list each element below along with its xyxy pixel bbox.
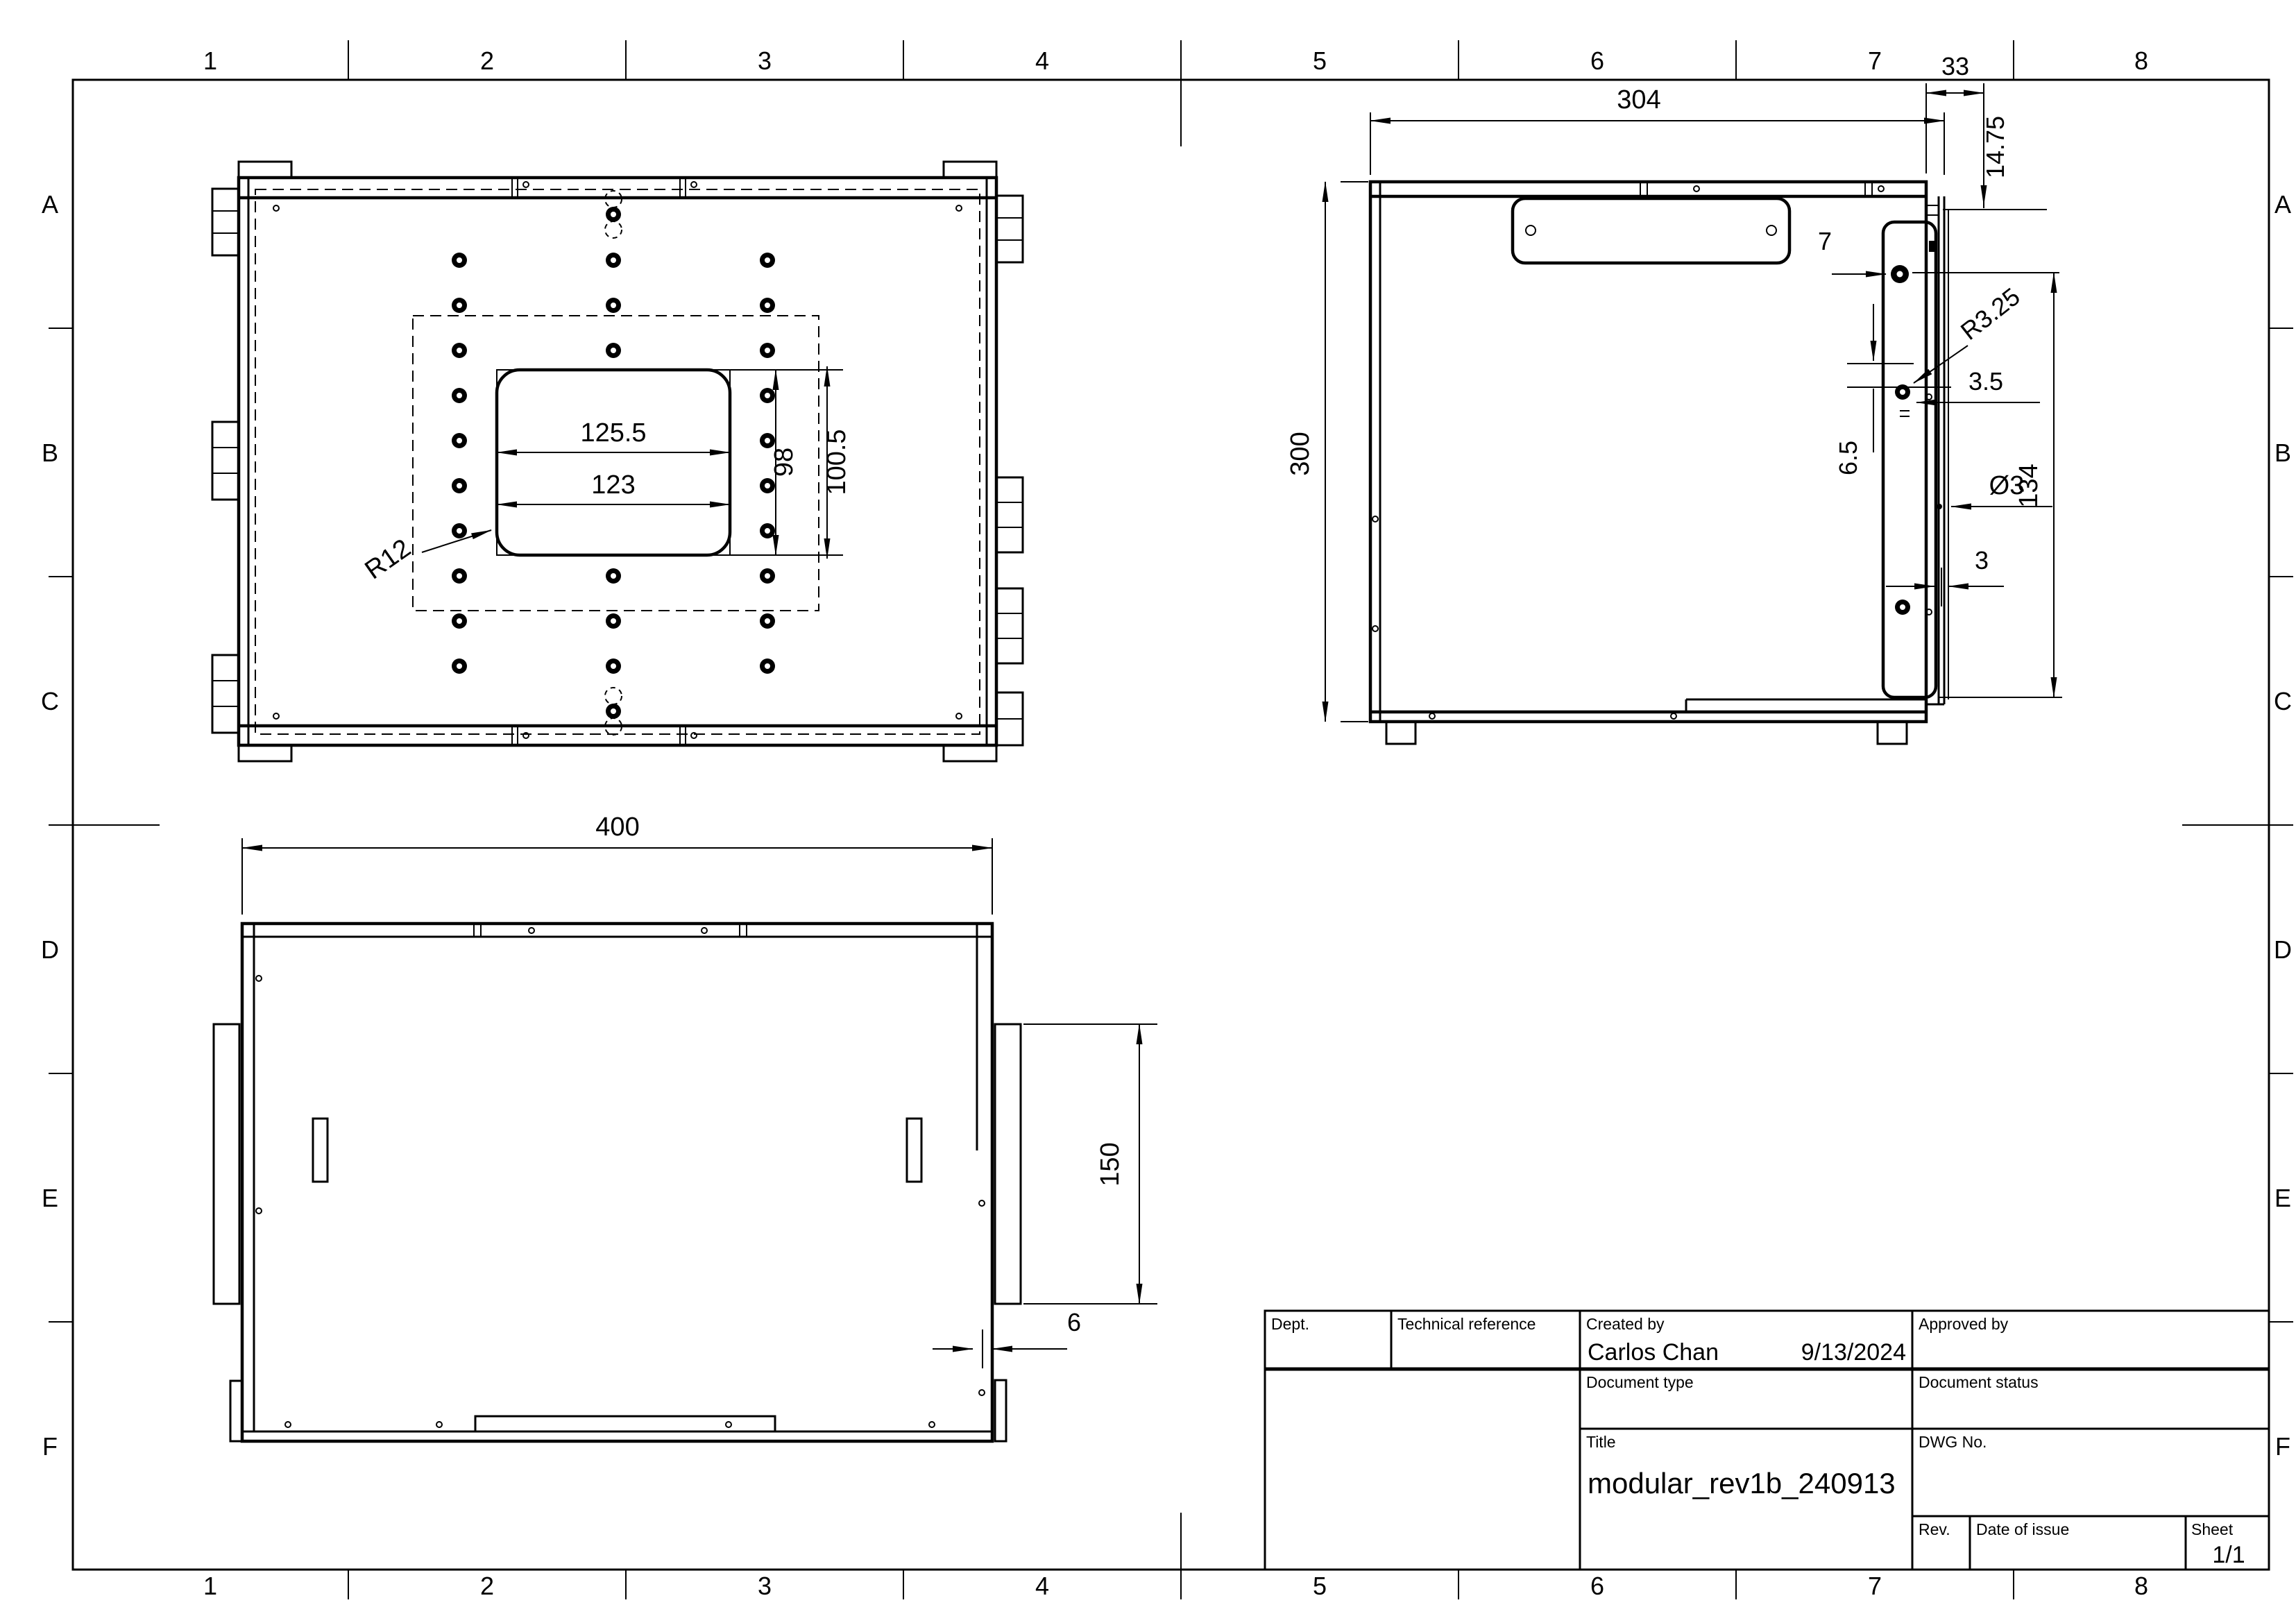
dim-body-width: 304: [1617, 85, 1660, 114]
col-label-top-6: 6: [1590, 46, 1604, 75]
side-view-mounting-plate: [1883, 222, 1942, 697]
row-label-right-B: B: [2274, 439, 2291, 467]
drawing-sheet: 1 2 3 4 5 6 7 8 1 2 3 4 5 6 7 8 A B C D …: [0, 0, 2296, 1623]
grid-labels: 1 2 3 4 5 6 7 8 1 2 3 4 5 6 7 8 A B C D …: [41, 46, 2292, 1600]
created-by-value: Carlos Chan: [1588, 1339, 1719, 1366]
side-view-dimensions: 300 304 33 14.75 7 R3.25 3.5: [1286, 52, 2062, 722]
col-label-bottom-3: 3: [758, 1572, 772, 1600]
title-value: modular_rev1b_240913: [1588, 1467, 1896, 1499]
col-label-top-4: 4: [1035, 46, 1049, 75]
cad-drawing-canvas: 1 2 3 4 5 6 7 8 1 2 3 4 5 6 7 8 A B C D …: [0, 0, 2296, 1623]
dwg-no-label: DWG No.: [1919, 1433, 1987, 1451]
row-label-left-D: D: [41, 935, 59, 964]
title-block: Dept. Technical reference Created by App…: [1265, 1311, 2269, 1570]
dim-wall-thickness: 6: [1067, 1308, 1081, 1336]
row-label-left-A: A: [42, 190, 58, 219]
sheet-frame: [49, 40, 2293, 1599]
created-date-value: 9/13/2024: [1801, 1339, 1906, 1366]
sheet-value: 1/1: [2212, 1542, 2245, 1568]
row-label-right-E: E: [2274, 1184, 2291, 1212]
col-label-top-2: 2: [480, 46, 494, 75]
dim-hole-pitch: 6.5: [1834, 441, 1862, 475]
title-label: Title: [1586, 1433, 1616, 1451]
col-label-top-1: 1: [203, 46, 217, 75]
col-label-bottom-7: 7: [1868, 1572, 1882, 1600]
top-view-dimensions: 125.5 123 98 100.5 R12: [360, 366, 851, 585]
dim-plate-offset: 33: [1941, 52, 1969, 80]
dim-hole-edge-offset: 7: [1818, 227, 1832, 255]
dim-plate-inset: 14.75: [1981, 116, 2009, 178]
top-view-cutout: [497, 370, 730, 555]
dim-hole-gap: 3.5: [1968, 367, 2003, 396]
col-label-bottom-6: 6: [1590, 1572, 1604, 1600]
col-label-top-5: 5: [1313, 46, 1327, 75]
col-label-bottom-2: 2: [480, 1572, 494, 1600]
row-label-right-C: C: [2274, 687, 2292, 715]
dim-front-width: 400: [595, 813, 639, 842]
date-of-issue-label: Date of issue: [1976, 1520, 2069, 1538]
dim-opening-height: 100.5: [822, 429, 851, 495]
dim-corner-radius: R12: [360, 534, 416, 585]
top-view: 125.5 123 98 100.5 R12: [212, 162, 1023, 761]
doc-status-label: Document status: [1919, 1373, 2039, 1391]
dim-body-height: 300: [1286, 432, 1315, 475]
row-label-left-F: F: [42, 1432, 58, 1461]
doc-type-label: Document type: [1586, 1373, 1694, 1391]
row-label-right-D: D: [2274, 935, 2292, 964]
col-label-bottom-8: 8: [2134, 1572, 2148, 1600]
col-label-top-7: 7: [1868, 46, 1882, 75]
col-label-top-8: 8: [2134, 46, 2148, 75]
dim-panel-width: 123: [591, 470, 635, 500]
sheet-label: Sheet: [2191, 1520, 2234, 1538]
top-view-hidden-lines: [255, 189, 980, 734]
dim-panel-height: 98: [769, 448, 799, 477]
dim-slot-radius: R3.25: [1955, 282, 2025, 345]
front-view-outline: [214, 924, 1021, 1441]
created-by-label: Created by: [1586, 1315, 1665, 1333]
row-label-right-A: A: [2274, 190, 2291, 219]
dim-opening-width: 125.5: [580, 418, 646, 448]
col-label-bottom-1: 1: [203, 1572, 217, 1600]
approved-by-label: Approved by: [1919, 1315, 2009, 1333]
tech-ref-label: Technical reference: [1397, 1315, 1536, 1333]
dim-panel-thickness: 3: [1975, 546, 1989, 575]
side-view: 300 304 33 14.75 7 R3.25 3.5: [1286, 52, 2062, 744]
row-label-left-E: E: [42, 1184, 58, 1212]
row-label-left-B: B: [42, 439, 58, 467]
row-label-right-F: F: [2275, 1432, 2290, 1461]
front-view: 400 150 6: [214, 813, 1157, 1441]
rev-label: Rev.: [1919, 1520, 1950, 1538]
col-label-bottom-5: 5: [1313, 1572, 1327, 1600]
dept-label: Dept.: [1271, 1315, 1309, 1333]
col-label-top-3: 3: [758, 46, 772, 75]
row-label-left-C: C: [41, 687, 59, 715]
top-view-latch-marks: [605, 191, 622, 735]
col-label-bottom-4: 4: [1035, 1572, 1049, 1600]
dim-tab-length: 150: [1096, 1142, 1125, 1186]
dim-plate-length: 134: [2014, 464, 2043, 507]
